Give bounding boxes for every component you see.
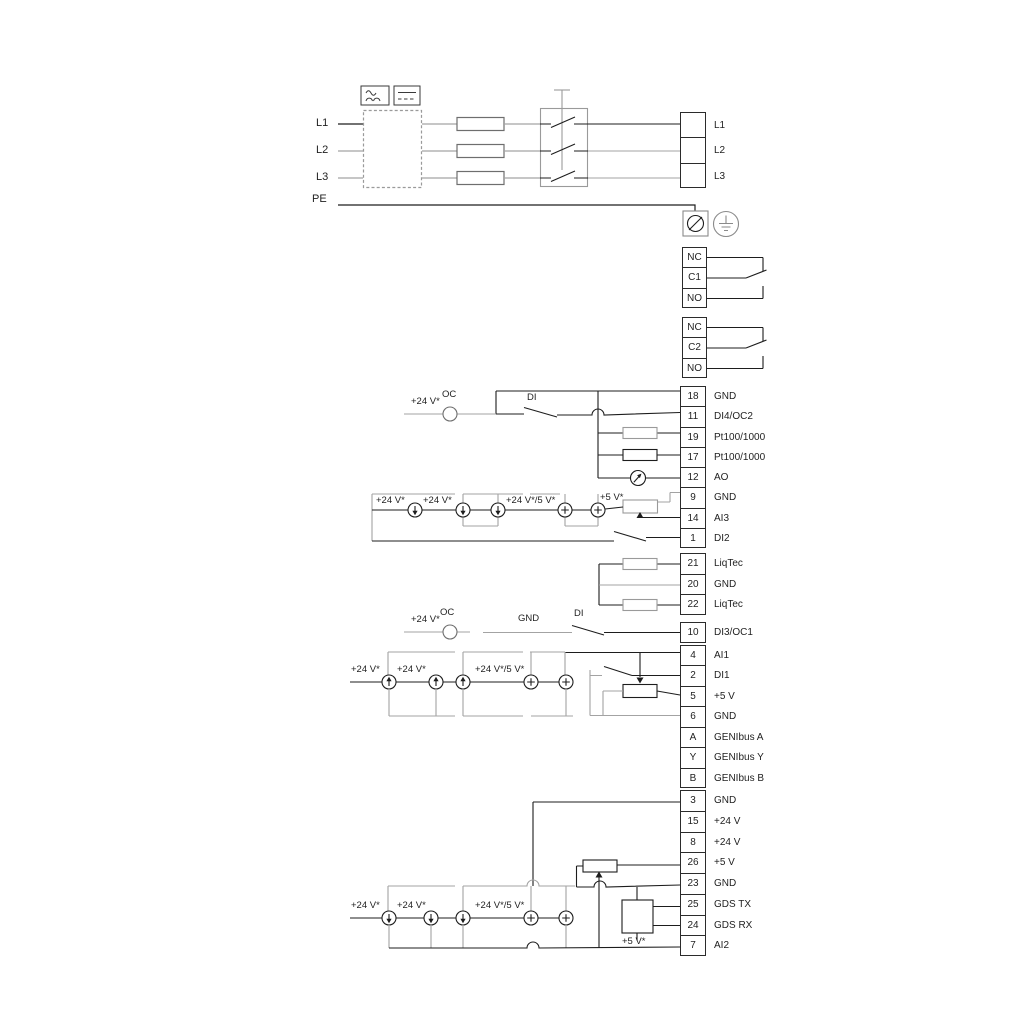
terminal-block-power-out: L1L2L3 — [680, 112, 706, 188]
terminal-label: GND — [714, 791, 736, 812]
current-source-icon — [424, 911, 438, 925]
pt100-resistor-17 — [623, 450, 657, 461]
earth-ground-icon — [714, 212, 739, 237]
terminal-label: DI1 — [714, 666, 730, 686]
supply-label: +24 V*/5 V* — [475, 900, 524, 911]
fuse-l3 — [457, 172, 504, 185]
supply-label: +24 V* — [351, 900, 380, 911]
terminal-row: NC — [683, 248, 706, 268]
supply-label: +24 V* — [423, 495, 452, 506]
terminal-label: AO — [714, 468, 728, 488]
terminal-row: 6GND — [681, 707, 705, 727]
terminal-row: 7AI2 — [681, 936, 705, 957]
voltage-source-icon — [559, 911, 573, 925]
terminal-row: 23GND — [681, 874, 705, 895]
terminal-label: L3 — [714, 164, 725, 189]
di3-switch-blade — [572, 626, 604, 636]
ai2-potentiometer — [583, 860, 617, 872]
terminal-label: Pt100/1000 — [714, 448, 765, 468]
fuses — [422, 118, 540, 185]
terminal-label: +24 V — [714, 812, 740, 833]
line-label-pe: PE — [312, 193, 327, 205]
pt100-resistor-19 — [623, 428, 657, 439]
terminal-row: L2 — [681, 138, 705, 163]
relay2-contact — [707, 328, 767, 369]
terminal-block-liqtec: 21LiqTec20GND22LiqTec — [680, 553, 706, 615]
terminal-label: DI2 — [714, 529, 730, 549]
terminal-row: 22LiqTec — [681, 595, 705, 616]
terminal-row: NO — [683, 289, 706, 309]
terminal-row: 21LiqTec — [681, 554, 705, 575]
di4-switch-blade — [524, 408, 557, 418]
terminal-label: GND — [714, 707, 736, 727]
terminal-row: 19Pt100/1000 — [681, 428, 705, 448]
terminal-label: GENIbus Y — [714, 748, 764, 768]
terminal-block-io2: 4AI12DI15+5 V6GNDAGENIbus AYGENIbus YBGE… — [680, 645, 706, 788]
line-label-l3: L3 — [316, 171, 328, 183]
terminal-row: L3 — [681, 164, 705, 189]
terminal-block-relay2: NCC2NO — [682, 317, 707, 378]
terminal-row: 12AO — [681, 468, 705, 488]
current-source-icon — [429, 675, 443, 689]
terminal-label: GDS RX — [714, 916, 752, 937]
terminal-row: 20GND — [681, 575, 705, 596]
ai3-potentiometer — [623, 500, 658, 513]
current-source-icon — [408, 503, 422, 517]
supply-label: +24 V* — [397, 664, 426, 675]
terminal-row: C1 — [683, 268, 706, 288]
terminal-label: GDS TX — [714, 895, 751, 916]
terminal-row: 1DI2 — [681, 529, 705, 549]
di2-switch-blade — [614, 532, 646, 542]
terminal-row: 11DI4/OC2 — [681, 407, 705, 427]
relay1-contact — [707, 258, 767, 299]
terminal-label: GND — [714, 874, 736, 895]
terminal-label: +5 V — [714, 687, 735, 707]
terminal-label: GND — [714, 575, 736, 596]
terminal-label: LiqTec — [714, 595, 743, 616]
liqtec-resistor-22 — [623, 600, 657, 611]
voltage-source-icon — [524, 911, 538, 925]
terminal-row: 4AI1 — [681, 646, 705, 666]
di-label: DI — [574, 608, 584, 619]
current-source-icon — [491, 503, 505, 517]
terminal-row: AGENIbus A — [681, 728, 705, 748]
terminal-block-io3: 3GND15+24 V8+24 V26+5 V23GND25GDS TX24GD… — [680, 790, 706, 956]
wiring-diagram: L1 L2 L3 PE L1L2L3 NCC1NO NCC2NO 18GND11… — [0, 0, 1024, 1024]
terminal-row: 10DI3/OC1 — [681, 623, 705, 644]
oc-label: OC — [440, 607, 454, 618]
terminal-label: GND — [714, 488, 736, 508]
terminal-row: 9GND — [681, 488, 705, 508]
terminal-block-io1: 18GND11DI4/OC219Pt100/100017Pt100/100012… — [680, 386, 706, 548]
gnd-label: GND — [518, 613, 539, 624]
current-source-icon — [382, 675, 396, 689]
current-source-icon — [456, 911, 470, 925]
io1-wiring — [404, 391, 680, 486]
terminal-row: 2DI1 — [681, 666, 705, 686]
voltage-source-icon — [558, 503, 572, 517]
current-source-icon — [382, 911, 396, 925]
voltage-source-icon — [591, 503, 605, 517]
oc2-circle-icon — [443, 407, 457, 421]
supply-label: +24 V* — [351, 664, 380, 675]
filter-dashed-box — [364, 111, 422, 188]
line-label-l2: L2 — [316, 144, 328, 156]
terminal-row: NC — [683, 318, 706, 338]
terminal-row: 25GDS TX — [681, 895, 705, 916]
gds-sensor-box — [622, 900, 653, 933]
terminal-label: +5 V — [714, 853, 735, 874]
terminal-row: C2 — [683, 338, 706, 358]
liqtec-wiring — [599, 559, 680, 611]
terminal-row: 15+24 V — [681, 812, 705, 833]
terminal-row: 18GND — [681, 387, 705, 407]
terminal-block-relay1: NCC1NO — [682, 247, 707, 308]
terminal-row: 5+5 V — [681, 687, 705, 707]
terminal-row: YGENIbus Y — [681, 748, 705, 768]
ai2-option-wiring — [350, 802, 680, 948]
ai1-option-wiring — [350, 652, 680, 716]
current-source-icon — [456, 675, 470, 689]
di-label: DI — [527, 392, 537, 403]
supply-label: +24 V*/5 V* — [506, 495, 555, 506]
terminal-label: Pt100/1000 — [714, 428, 765, 448]
supply-label: +24 V* — [411, 614, 440, 625]
supply-label: +24 V* — [411, 396, 440, 407]
supply-label: +5 V* — [600, 492, 624, 503]
terminal-label: AI2 — [714, 936, 729, 957]
terminal-label: GND — [714, 387, 736, 407]
supply-label: +24 V* — [397, 900, 426, 911]
supply-label: +24 V*/5 V* — [475, 664, 524, 675]
terminal-row: 17Pt100/1000 — [681, 448, 705, 468]
liqtec-resistor-21 — [623, 559, 657, 570]
pe-screw-terminal — [683, 211, 708, 236]
terminal-block-di3: 10DI3/OC1 — [680, 622, 706, 643]
terminal-row: BGENIbus B — [681, 769, 705, 789]
terminal-label: L1 — [714, 113, 725, 138]
terminal-row: NO — [683, 359, 706, 379]
terminal-row: 26+5 V — [681, 853, 705, 874]
wiring-svg — [0, 0, 1024, 1024]
terminal-label: +24 V — [714, 833, 740, 854]
voltage-source-icon — [559, 675, 573, 689]
ao-meter-icon — [631, 471, 646, 486]
terminal-row: 24GDS RX — [681, 916, 705, 937]
terminal-row: 8+24 V — [681, 833, 705, 854]
main-switch — [540, 90, 680, 187]
oc-label: OC — [442, 389, 456, 400]
terminal-label: LiqTec — [714, 554, 743, 575]
di1-switch-blade — [604, 667, 632, 676]
voltage-source-icon — [524, 675, 538, 689]
ai1-potentiometer — [623, 685, 657, 698]
current-source-icon — [456, 503, 470, 517]
terminal-label: DI4/OC2 — [714, 407, 753, 427]
fuse-l1 — [457, 118, 504, 131]
terminal-row: 3GND — [681, 791, 705, 812]
supply-label: +24 V* — [376, 495, 405, 506]
terminal-label: GENIbus A — [714, 728, 763, 748]
line-label-l1: L1 — [316, 117, 328, 129]
terminal-row: 14AI3 — [681, 509, 705, 529]
rcd-type-symbols — [361, 86, 420, 105]
terminal-label: DI3/OC1 — [714, 623, 753, 644]
power-input-wires — [338, 124, 695, 211]
terminal-label: AI3 — [714, 509, 729, 529]
supply-label: +5 V* — [622, 936, 646, 947]
fuse-l2 — [457, 145, 504, 158]
terminal-label: AI1 — [714, 646, 729, 666]
terminal-row: L1 — [681, 113, 705, 138]
oc1-circle-icon — [443, 625, 457, 639]
terminal-label: L2 — [714, 138, 725, 163]
terminal-label: GENIbus B — [714, 769, 764, 789]
wiper-arrow — [637, 678, 644, 684]
